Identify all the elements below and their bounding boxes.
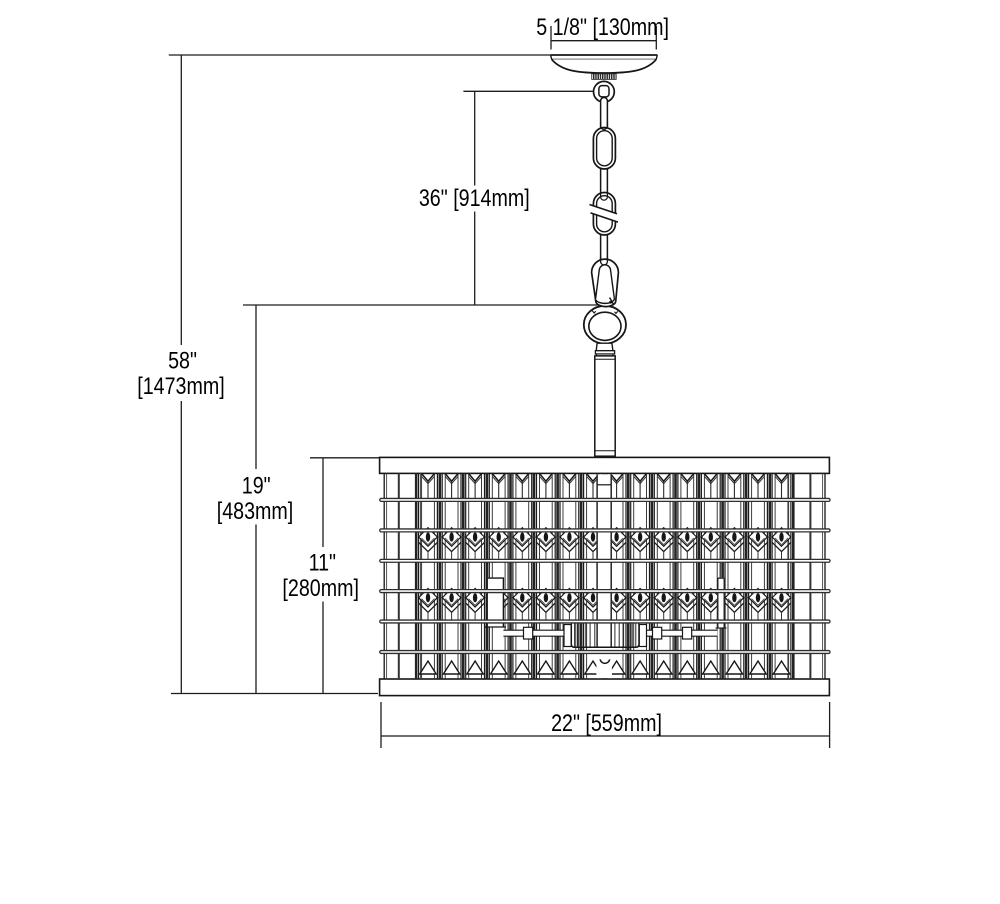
svg-text:[280mm]: [280mm]	[282, 574, 359, 601]
svg-text:[483mm]: [483mm]	[217, 497, 294, 524]
svg-text:19": 19"	[242, 471, 271, 498]
svg-text:58": 58"	[168, 347, 197, 374]
svg-text:22" [559mm]: 22" [559mm]	[551, 709, 662, 736]
svg-text:5 1/8" [130mm]: 5 1/8" [130mm]	[536, 13, 669, 40]
svg-text:11": 11"	[309, 549, 336, 576]
svg-text:36" [914mm]: 36" [914mm]	[419, 184, 530, 211]
svg-text:[1473mm]: [1473mm]	[137, 372, 224, 399]
